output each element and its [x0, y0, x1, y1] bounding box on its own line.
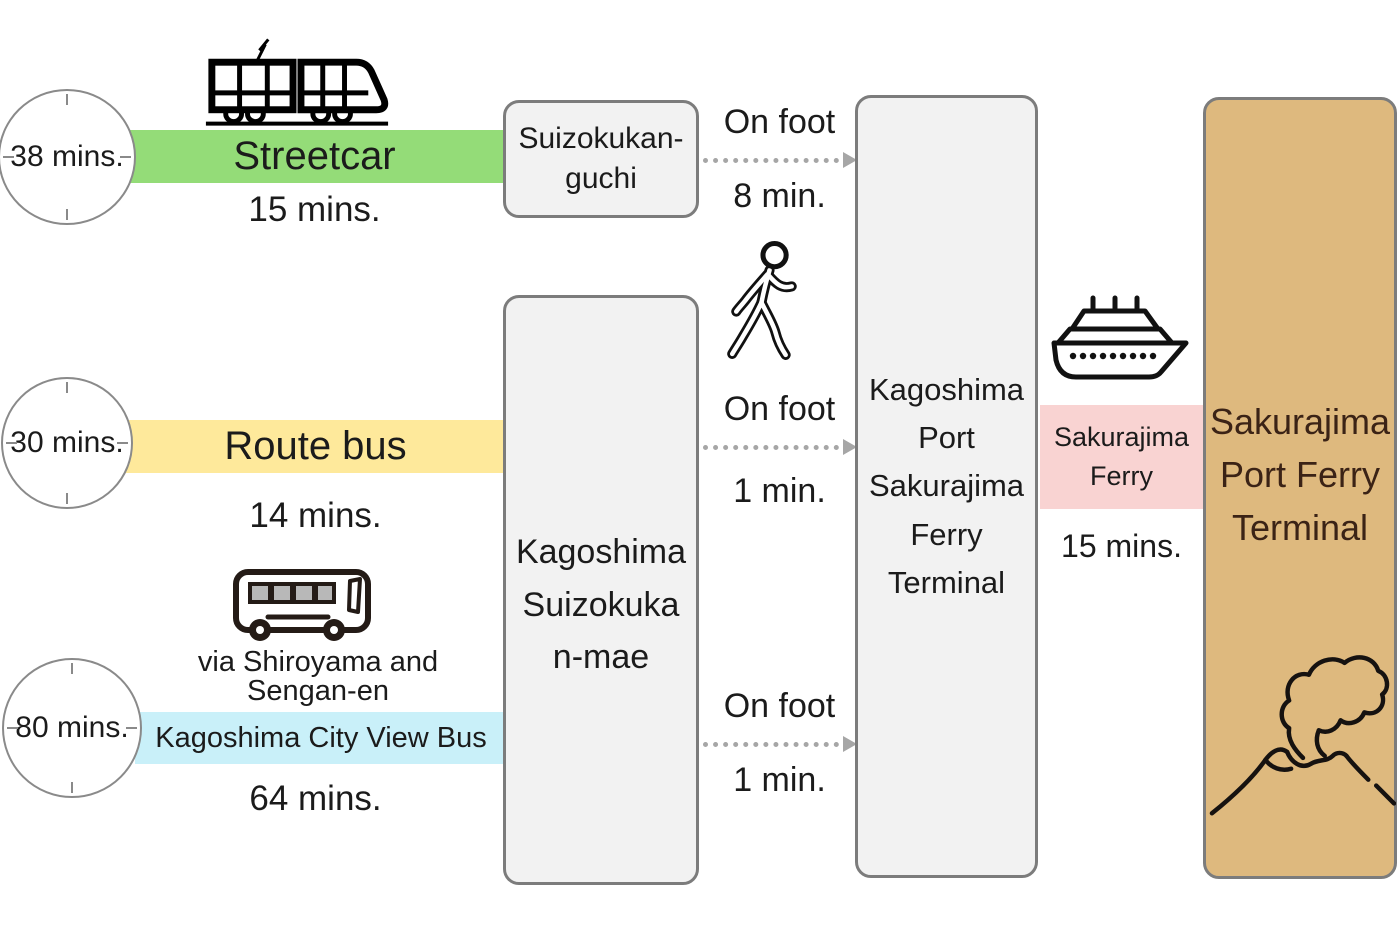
walk-connector-3: On foot 1 min.: [703, 684, 856, 800]
clock-tick: [120, 156, 131, 158]
walk-label: On foot: [703, 387, 856, 431]
via-line: Sengan-en: [124, 677, 512, 706]
clock-tick: [6, 442, 17, 444]
volcano-sketch-icon: [1208, 642, 1396, 852]
station-line: Suizokukan-: [518, 119, 683, 160]
station-line: Port Ferry: [1206, 449, 1394, 502]
station-line: guchi: [518, 159, 683, 200]
walk-connector-1: On foot 8 min.: [703, 100, 856, 216]
walk-duration: 8 min.: [703, 177, 856, 216]
station-kagoshima-port-ferry-terminal: Kagoshima Port Sakurajima Ferry Terminal: [855, 95, 1038, 878]
dotted-arrow-icon: [703, 742, 849, 747]
total-time-city-view-bus: 80 mins.: [15, 711, 128, 745]
ferry-icon: [1048, 290, 1193, 382]
station-sakurajima-port-ferry-terminal: Sakurajima Port Ferry Terminal: [1203, 97, 1397, 879]
walk-duration: 1 min.: [703, 472, 856, 511]
route-bus-bar: Route bus: [124, 420, 507, 473]
clock-tick: [7, 727, 18, 729]
station-suizokukan-guchi: Suizokukan- guchi: [503, 100, 699, 218]
clock-tick: [66, 94, 68, 105]
walk-label: On foot: [703, 684, 856, 728]
city-view-bus-label: Kagoshima City View Bus: [155, 722, 487, 755]
station-line: n-mae: [516, 631, 686, 684]
clock-icon: 38 mins.: [0, 89, 136, 225]
pedestrian-icon: [722, 240, 810, 366]
streetcar-route-bar: Streetcar: [122, 130, 507, 183]
clock-tick: [66, 382, 68, 393]
station-kagoshima-suizokukan-mae: Kagoshima Suizokuka n-mae: [503, 295, 699, 885]
station-line: Sakurajima: [869, 462, 1024, 510]
walk-connector-2: On foot 1 min.: [703, 387, 856, 511]
station-line: Terminal: [869, 559, 1024, 607]
transit-diagram: 38 mins. Streetcar 15 mins. Suizokukan- …: [0, 0, 1400, 933]
dotted-arrow-icon: [703, 445, 849, 450]
via-line: via Shiroyama and: [124, 648, 512, 677]
streetcar-duration: 15 mins.: [122, 190, 507, 230]
dotted-arrow-icon: [703, 158, 849, 163]
station-line: Kagoshima: [516, 526, 686, 579]
clock-tick: [3, 156, 14, 158]
clock-icon: 30 mins.: [1, 377, 133, 509]
clock-tick: [117, 442, 128, 444]
walk-label: On foot: [703, 100, 856, 144]
city-view-bus-duration: 64 mins.: [124, 779, 507, 819]
station-line: Suizokuka: [516, 579, 686, 632]
ferry-duration: 15 mins.: [1040, 528, 1203, 565]
clock-tick: [71, 663, 73, 674]
station-line: Kagoshima: [869, 366, 1024, 414]
total-time-route-bus: 30 mins.: [10, 426, 123, 460]
station-line: Sakurajima: [1206, 396, 1394, 449]
city-view-bus-bar: Kagoshima City View Bus: [135, 712, 507, 764]
ferry-name-line: Ferry: [1054, 457, 1189, 496]
route-bus-label: Route bus: [224, 424, 406, 469]
sakurajima-ferry-label: Sakurajima Ferry: [1040, 405, 1203, 509]
streetcar-icon: [198, 38, 396, 130]
station-line: Terminal: [1206, 502, 1394, 555]
walk-duration: 1 min.: [703, 761, 856, 800]
streetcar-label: Streetcar: [233, 134, 395, 179]
clock-tick: [126, 727, 137, 729]
bus-icon: [230, 564, 380, 646]
station-line: Port: [869, 414, 1024, 462]
route-bus-duration: 14 mins.: [124, 496, 507, 536]
via-note: via Shiroyama and Sengan-en: [124, 648, 512, 706]
ferry-name-line: Sakurajima: [1054, 418, 1189, 457]
total-time-streetcar: 38 mins.: [10, 140, 123, 174]
clock-icon: 80 mins.: [2, 658, 142, 798]
clock-tick: [71, 782, 73, 793]
station-line: Ferry: [869, 511, 1024, 559]
clock-tick: [66, 209, 68, 220]
clock-tick: [66, 493, 68, 504]
